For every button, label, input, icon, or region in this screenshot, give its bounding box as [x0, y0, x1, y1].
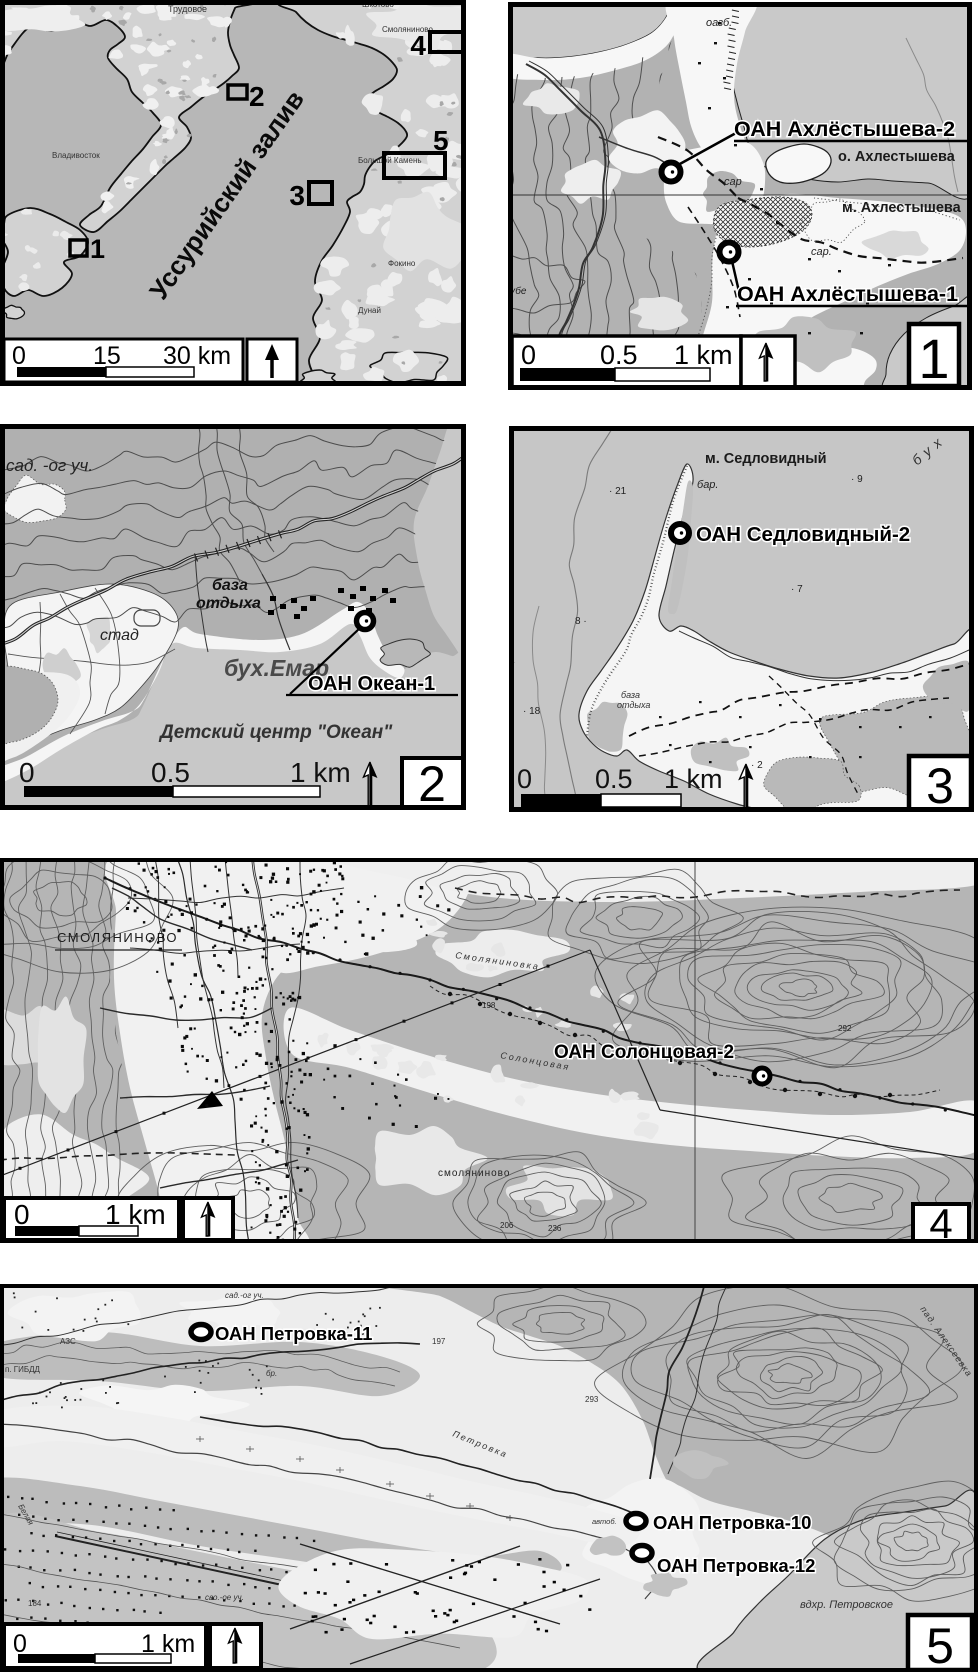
svg-text:бар.: бар.	[697, 479, 718, 491]
svg-text:· 9: · 9	[851, 474, 863, 485]
svg-text:1: 1	[918, 327, 949, 390]
svg-text:2: 2	[418, 756, 446, 810]
svg-text:сво.-ое уч.: сво.-ое уч.	[205, 1593, 244, 1602]
svg-text:0: 0	[521, 340, 536, 370]
svg-text:30 km: 30 km	[163, 342, 231, 370]
svg-text:стад: стад	[100, 627, 139, 644]
svg-text:292: 292	[838, 1024, 852, 1033]
svg-text:ОАН Ахлёстышева-2: ОАН Ахлёстышева-2	[734, 117, 955, 141]
svg-text:Дунай: Дунай	[358, 306, 381, 315]
svg-text:15: 15	[93, 342, 121, 370]
svg-text:4: 4	[410, 30, 426, 61]
svg-text:ОАН Петровка-12: ОАН Петровка-12	[657, 1555, 815, 1576]
svg-text:оазб.: оазб.	[706, 17, 732, 29]
svg-text:198: 198	[482, 1001, 496, 1010]
svg-text:0: 0	[13, 1630, 27, 1658]
svg-text:база: база	[212, 577, 248, 594]
svg-text:1 km: 1 km	[664, 764, 723, 794]
svg-text:Трудовое: Трудовое	[168, 4, 207, 14]
svg-text:293: 293	[585, 1395, 599, 1404]
svg-text:Детский центр "Океан": Детский центр "Океан"	[158, 722, 393, 743]
svg-text:п. ГИБДД: п. ГИБДД	[5, 1365, 41, 1374]
svg-text:м. Ахлестышева: м. Ахлестышева	[842, 200, 962, 216]
svg-text:Владивосток: Владивосток	[52, 151, 100, 160]
svg-text:м. Седловидный: м. Седловидный	[705, 451, 827, 467]
svg-text:сар: сар	[724, 176, 742, 188]
svg-text:автоб.: автоб.	[592, 1517, 617, 1526]
svg-text:1 km: 1 km	[290, 757, 351, 788]
svg-text:236: 236	[548, 1224, 562, 1233]
svg-text:АЗС: АЗС	[60, 1337, 76, 1346]
svg-text:0.5: 0.5	[600, 340, 638, 370]
svg-text:3: 3	[926, 758, 954, 812]
svg-text:· 2: · 2	[751, 760, 763, 771]
svg-text:Большой Камень: Большой Камень	[358, 156, 422, 165]
svg-text:о. Ахлестышева: о. Ахлестышева	[838, 149, 956, 165]
svg-text:0.5: 0.5	[151, 757, 190, 788]
svg-text:0: 0	[19, 757, 35, 788]
svg-text:смоляниново: смоляниново	[438, 1168, 510, 1179]
svg-text:СМОЛЯНИНОВО: СМОЛЯНИНОВО	[57, 930, 178, 945]
svg-text:206: 206	[500, 1221, 514, 1230]
svg-text:бр.: бр.	[266, 1369, 277, 1378]
svg-text:сад.-ог уч.: сад.-ог уч.	[225, 1291, 264, 1300]
svg-text:сад. -ог уч.: сад. -ог уч.	[6, 456, 93, 475]
svg-text:8 ·: 8 ·	[575, 616, 587, 627]
svg-text:база: база	[621, 690, 640, 700]
svg-text:· 18: · 18	[523, 706, 541, 717]
svg-text:отдыха: отдыха	[196, 595, 261, 612]
svg-text:5: 5	[433, 125, 449, 156]
svg-text:ОАН Солонцовая-2: ОАН Солонцовая-2	[554, 1042, 734, 1063]
svg-text:0: 0	[14, 1199, 30, 1230]
svg-text:1: 1	[90, 234, 105, 264]
svg-text:ОАН Ахлёстышева-1: ОАН Ахлёстышева-1	[737, 282, 958, 306]
svg-text:ОАН Седловидный-2: ОАН Седловидный-2	[696, 523, 910, 546]
svg-text:4: 4	[929, 1200, 952, 1243]
svg-text:3: 3	[289, 180, 305, 211]
svg-text:ОАН Океан-1: ОАН Океан-1	[308, 673, 435, 695]
svg-text:отдыха: отдыха	[617, 700, 650, 710]
svg-text:0: 0	[12, 342, 26, 370]
svg-text:0: 0	[517, 764, 532, 794]
svg-text:· 21: · 21	[609, 486, 627, 497]
svg-text:Фокино: Фокино	[388, 259, 416, 268]
svg-text:1 km: 1 km	[674, 340, 733, 370]
svg-text:вдхр. Петровское: вдхр. Петровское	[800, 1599, 893, 1611]
svg-text:ОАН Петровка-10: ОАН Петровка-10	[653, 1512, 811, 1533]
svg-text:· 7: · 7	[791, 584, 803, 595]
svg-text:197: 197	[432, 1337, 446, 1346]
svg-text:ОАН Петровка-11: ОАН Петровка-11	[215, 1323, 372, 1344]
svg-text:0.5: 0.5	[595, 764, 633, 794]
svg-text:сар.: сар.	[811, 246, 832, 258]
svg-text:184: 184	[28, 1599, 42, 1608]
svg-text:5: 5	[926, 1618, 954, 1672]
svg-text:2: 2	[249, 81, 265, 112]
